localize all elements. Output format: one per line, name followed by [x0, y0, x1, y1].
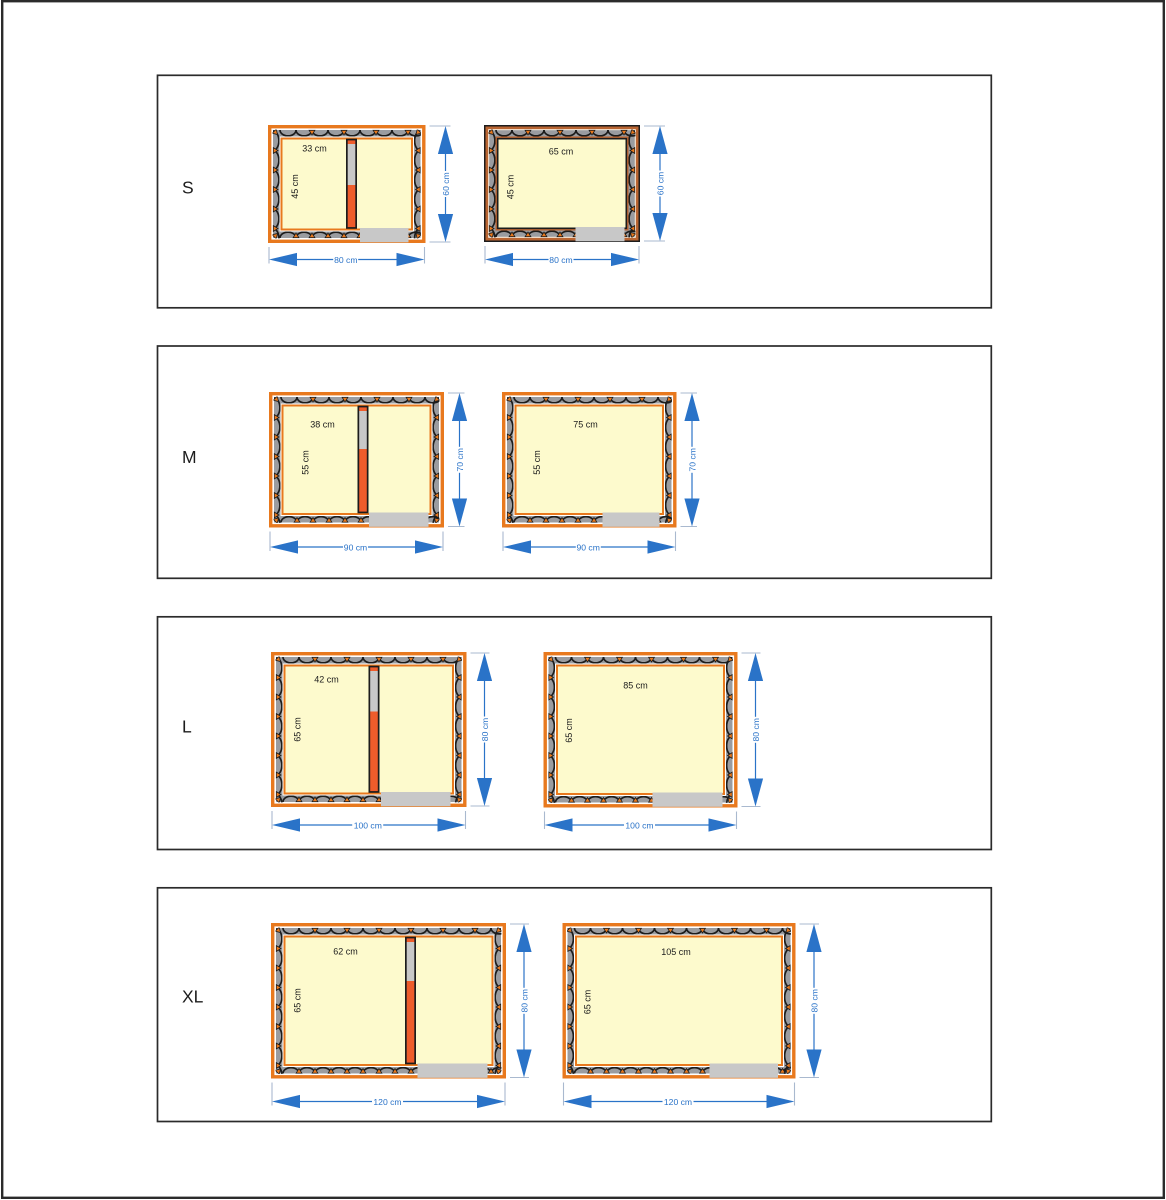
svg-text:80 cm: 80 cm — [549, 255, 572, 265]
svg-text:55 cm: 55 cm — [532, 450, 542, 475]
svg-text:90 cm: 90 cm — [344, 543, 367, 553]
svg-text:80 cm: 80 cm — [810, 989, 820, 1012]
svg-text:L: L — [182, 717, 192, 737]
svg-text:60 cm: 60 cm — [441, 172, 451, 195]
svg-text:65 cm: 65 cm — [564, 718, 574, 743]
svg-text:42 cm: 42 cm — [314, 675, 339, 685]
svg-text:70 cm: 70 cm — [688, 448, 698, 471]
svg-text:XL: XL — [182, 987, 204, 1007]
svg-text:80 cm: 80 cm — [520, 989, 530, 1012]
svg-text:105 cm: 105 cm — [661, 947, 691, 957]
svg-text:38 cm: 38 cm — [310, 420, 335, 430]
svg-text:90 cm: 90 cm — [576, 543, 599, 553]
svg-text:65 cm: 65 cm — [293, 988, 303, 1013]
svg-text:100 cm: 100 cm — [625, 821, 653, 831]
svg-text:120 cm: 120 cm — [664, 1097, 692, 1107]
svg-text:62 cm: 62 cm — [333, 947, 358, 957]
svg-text:65 cm: 65 cm — [549, 147, 574, 157]
svg-text:85 cm: 85 cm — [623, 681, 648, 691]
svg-text:80 cm: 80 cm — [751, 718, 761, 741]
svg-text:65 cm: 65 cm — [293, 717, 303, 742]
svg-text:120 cm: 120 cm — [373, 1097, 401, 1107]
svg-text:45 cm: 45 cm — [506, 175, 516, 200]
svg-text:80 cm: 80 cm — [480, 718, 490, 741]
svg-text:100 cm: 100 cm — [354, 821, 382, 831]
svg-text:45 cm: 45 cm — [290, 174, 300, 199]
svg-text:70 cm: 70 cm — [455, 448, 465, 471]
svg-text:75 cm: 75 cm — [573, 420, 598, 430]
svg-text:S: S — [182, 178, 194, 198]
svg-text:80 cm: 80 cm — [334, 255, 357, 265]
svg-text:60 cm: 60 cm — [656, 172, 666, 195]
svg-text:33 cm: 33 cm — [302, 144, 327, 154]
svg-text:55 cm: 55 cm — [301, 450, 311, 475]
svg-text:65 cm: 65 cm — [583, 990, 593, 1015]
svg-text:M: M — [182, 447, 197, 467]
